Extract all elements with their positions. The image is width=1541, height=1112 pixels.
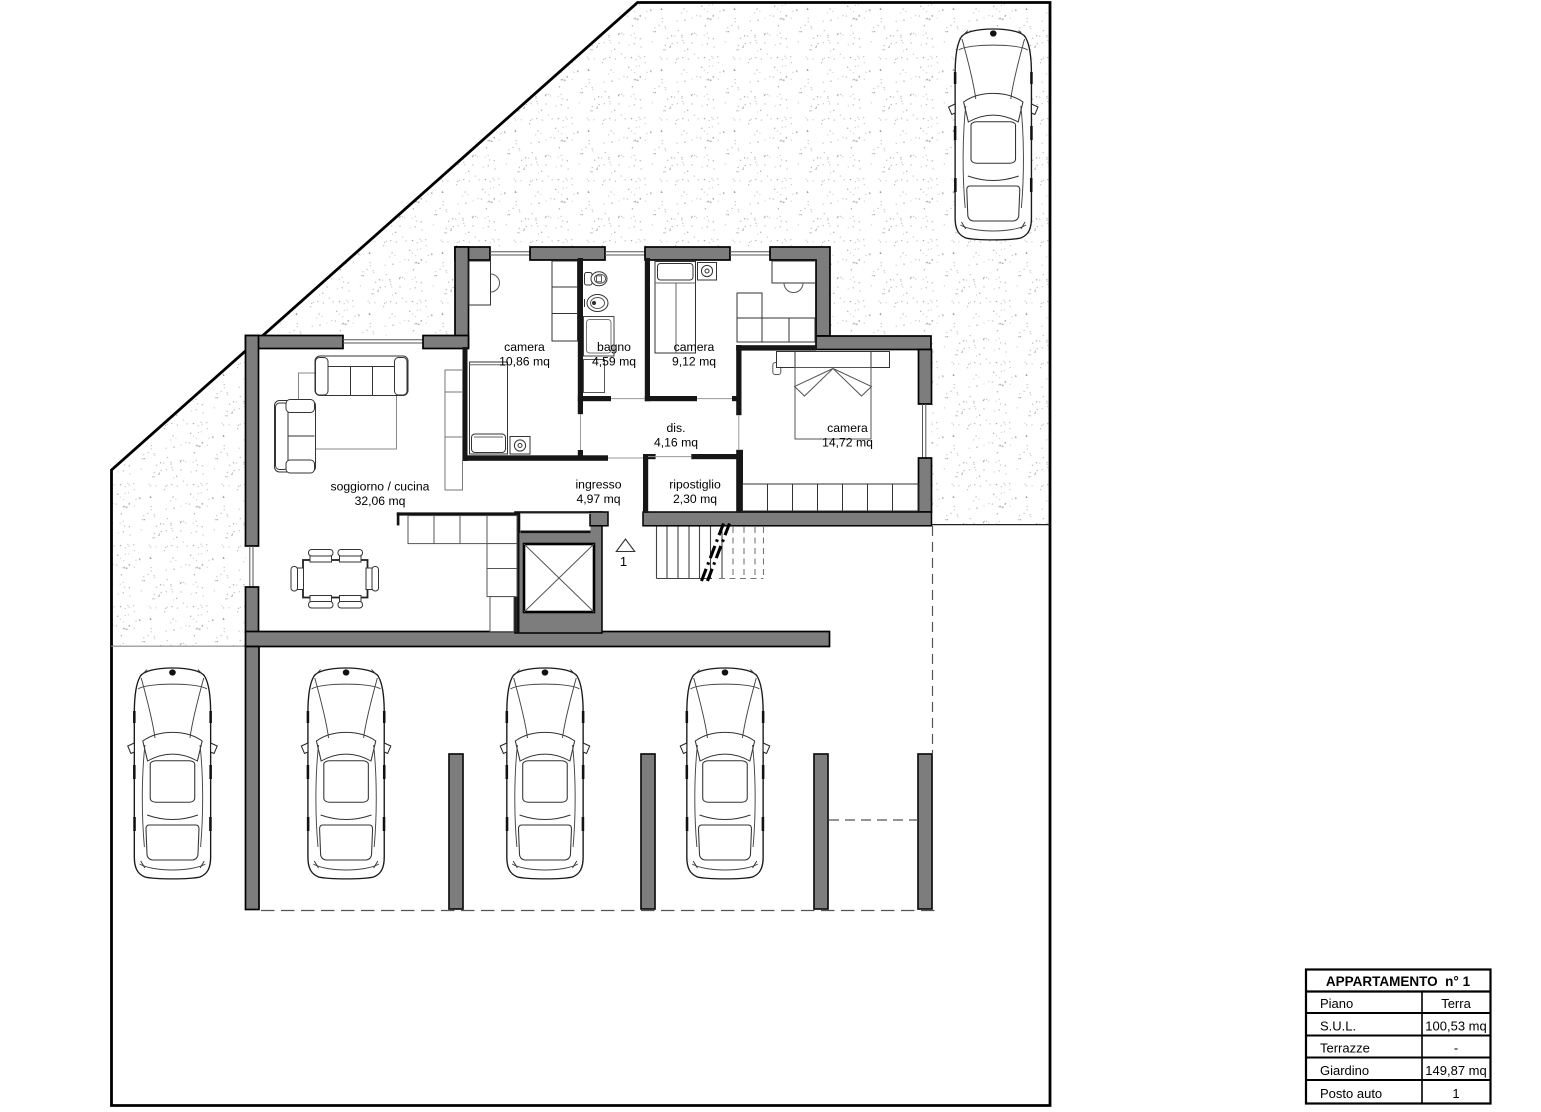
- svg-text:149,87 mq: 149,87 mq: [1425, 1063, 1486, 1078]
- svg-text:2,30 mq: 2,30 mq: [673, 492, 717, 506]
- svg-text:1: 1: [1452, 1086, 1459, 1101]
- svg-text:camera: camera: [674, 340, 715, 354]
- svg-text:100,53 mq: 100,53 mq: [1425, 1019, 1486, 1034]
- svg-text:1: 1: [620, 554, 627, 569]
- svg-text:10,86 mq: 10,86 mq: [499, 355, 550, 369]
- svg-text:soggiorno / cucina: soggiorno / cucina: [331, 480, 430, 494]
- svg-text:ingresso: ingresso: [575, 478, 621, 492]
- svg-text:ripostiglio: ripostiglio: [669, 478, 721, 492]
- svg-text:Posto auto: Posto auto: [1320, 1086, 1382, 1101]
- svg-text:S.U.L.: S.U.L.: [1320, 1019, 1356, 1034]
- svg-text:32,06 mq: 32,06 mq: [355, 494, 406, 508]
- svg-text:Terra: Terra: [1441, 996, 1471, 1011]
- svg-text:camera: camera: [827, 421, 868, 435]
- svg-text:Piano: Piano: [1320, 996, 1353, 1011]
- svg-text:Giardino: Giardino: [1320, 1063, 1369, 1078]
- svg-text:bagno: bagno: [597, 340, 631, 354]
- svg-text:9,12 mq: 9,12 mq: [672, 355, 716, 369]
- svg-text:dis.: dis.: [667, 421, 686, 435]
- svg-text:camera: camera: [504, 340, 545, 354]
- svg-text:Terrazze: Terrazze: [1320, 1041, 1370, 1056]
- svg-text:14,72 mq: 14,72 mq: [822, 436, 873, 450]
- svg-text:APPARTAMENTO n° 1: APPARTAMENTO n° 1: [1326, 974, 1471, 989]
- svg-text:4,59 mq: 4,59 mq: [592, 355, 636, 369]
- svg-text:-: -: [1454, 1041, 1458, 1056]
- svg-text:4,97 mq: 4,97 mq: [576, 492, 620, 506]
- svg-text:4,16 mq: 4,16 mq: [654, 436, 698, 450]
